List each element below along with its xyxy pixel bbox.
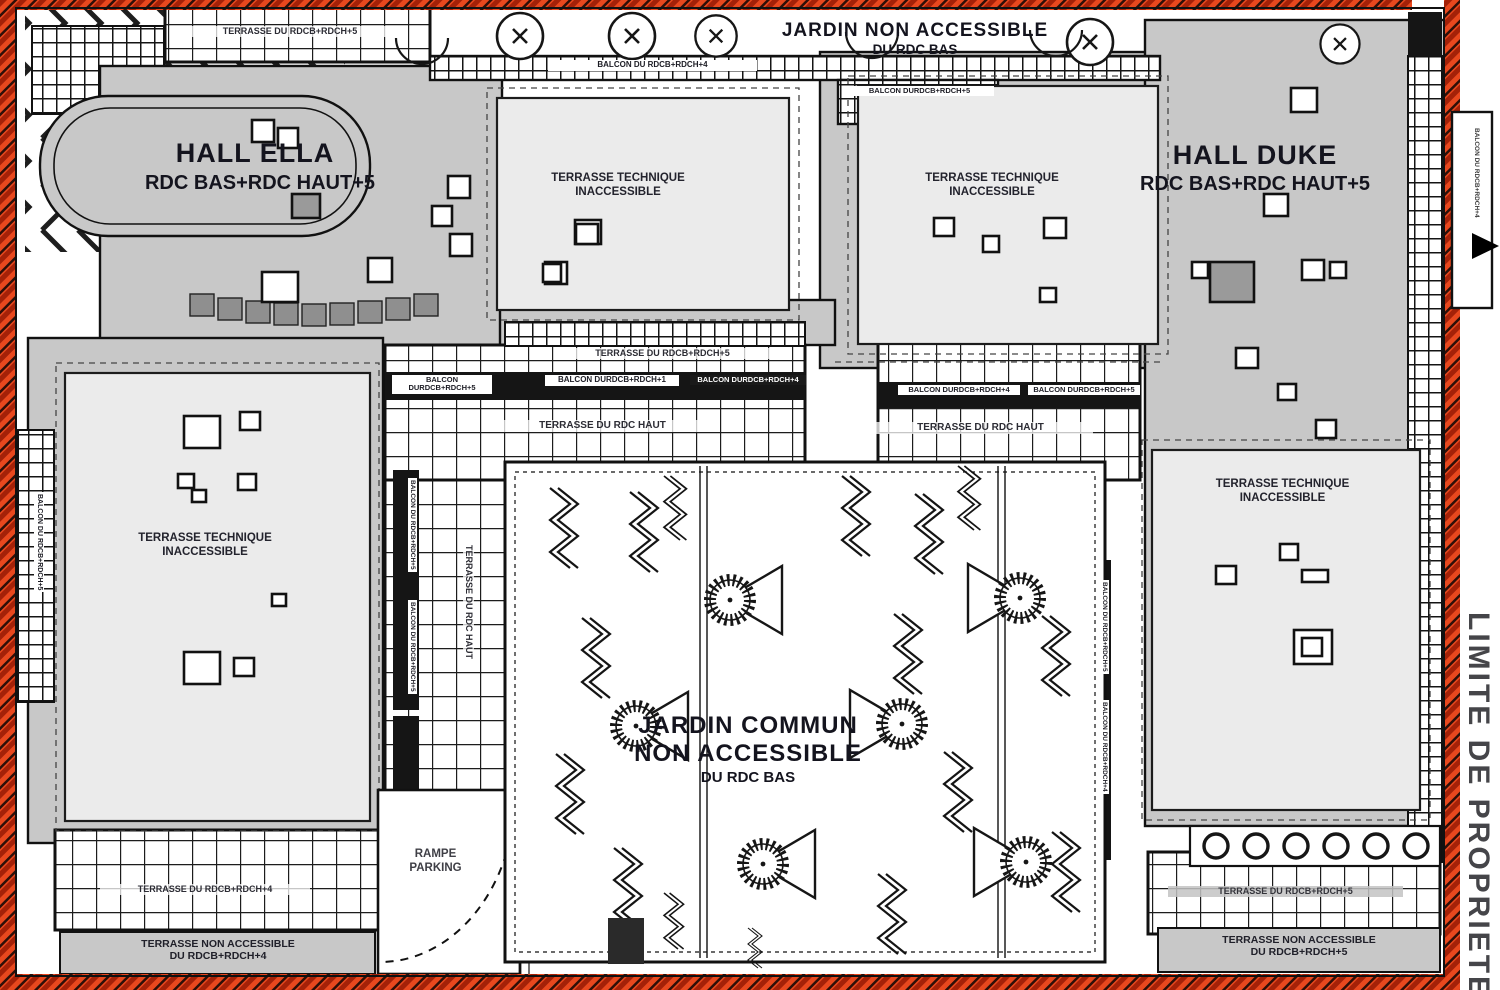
balcon-vert-strip-3: BALCON DU RDCB+RDCH+5: [1100, 580, 1109, 674]
terrasse-technique-2: TERRASSE TECHNIQUEINACCESSIBLE: [872, 172, 1112, 199]
terrasse-technique-1: TERRASSE TECHNIQUEINACCESSIBLE: [498, 172, 738, 199]
hall-ella-name: HALL ELLA: [110, 138, 400, 170]
balcon-vert-strip-4: BALCON DU RDCB+RDCH+4: [1100, 700, 1109, 794]
terrasse-rdcb5-top: TERRASSE DU RDCB+RDCH+5: [190, 26, 390, 37]
balcon-chip-4: BALCON DURDCB+RDCH+4: [690, 375, 806, 385]
planter-row: [1190, 826, 1440, 866]
terrasse-na-4-label: TERRASSE NON ACCESSIBLEDU RDCB+RDCH+4: [68, 938, 368, 963]
terrasse-rdcb5-bottom: TERRASSE DU RDCB+RDCH+5: [1168, 886, 1403, 897]
top-garden-label: JARDIN NON ACCESSIBLE DU RDC BAS: [770, 20, 1060, 58]
terrasse-na-5-label: TERRASSE NON ACCESSIBLEDU RDCB+RDCH+5: [1168, 934, 1430, 959]
terrasse-rdcb4-bottom: TERRASSE DU RDCB+RDCH+4: [100, 884, 310, 895]
balcon-chip-mid: BALCON DURDCB+RDCH+5: [845, 86, 994, 96]
balcon-chip-5b: BALCON DURDCB+RDCH+5: [1028, 385, 1140, 395]
stair-access: [608, 918, 644, 964]
balcon-vert-left-edge: BALCON DU RDCB+RDCH+5: [34, 492, 44, 592]
rampe-parking-label: RAMPEPARKING: [378, 848, 493, 875]
balcon-chip-1: BALCON DURDCB+RDCH+1: [545, 375, 679, 386]
terrasse-rdc-haut-left: TERRASSE DU RDC HAUT: [495, 420, 710, 432]
terrasse-technique-4: TERRASSE TECHNIQUEINACCESSIBLE: [1165, 478, 1400, 505]
balcon-vert-right-edge: BALCON DU RDCB+RDCH+4: [1472, 128, 1480, 218]
hall-duke-name: HALL DUKE: [1105, 140, 1405, 172]
site-plan: HALL ELLA RDC BAS+RDC HAUT+5 HALL DUKE R…: [0, 0, 1500, 990]
balcon-vert-strip-1: BALCON DU RDCB+RDCH+5: [408, 478, 417, 572]
limite-propriete-label: LIMITE DE PROPRIETE: [1461, 612, 1496, 990]
hall-ella-levels: RDC BAS+RDC HAUT+5: [95, 172, 425, 196]
terrasse-rdc-haut-vertical: TERRASSE DU RDC HAUT: [463, 545, 474, 659]
balcon-chip-5: BALCON DURDCB+RDCH+5: [392, 375, 492, 394]
terrasse-technique-3: TERRASSE TECHNIQUEINACCESSIBLE: [85, 532, 325, 559]
hall-duke-levels: RDC BAS+RDC HAUT+5: [1090, 173, 1420, 197]
terrasse-rdc-haut-right: TERRASSE DU RDC HAUT: [868, 422, 1093, 434]
balcon-chip-top: BALCON DU RDCB+RDCH+4: [548, 60, 757, 71]
balcon-chip-4b: BALCON DURDCB+RDCH+4: [898, 385, 1020, 395]
central-garden-label: JARDIN COMMUN NON ACCESSIBLE DU RDC BAS: [598, 712, 898, 786]
balcon-vert-strip-2: BALCON DU RDCB+RDCH+5: [408, 600, 417, 694]
terrasse-rdcb5-mid: TERRASSE DU RDCB+RDCH+5: [555, 348, 770, 359]
